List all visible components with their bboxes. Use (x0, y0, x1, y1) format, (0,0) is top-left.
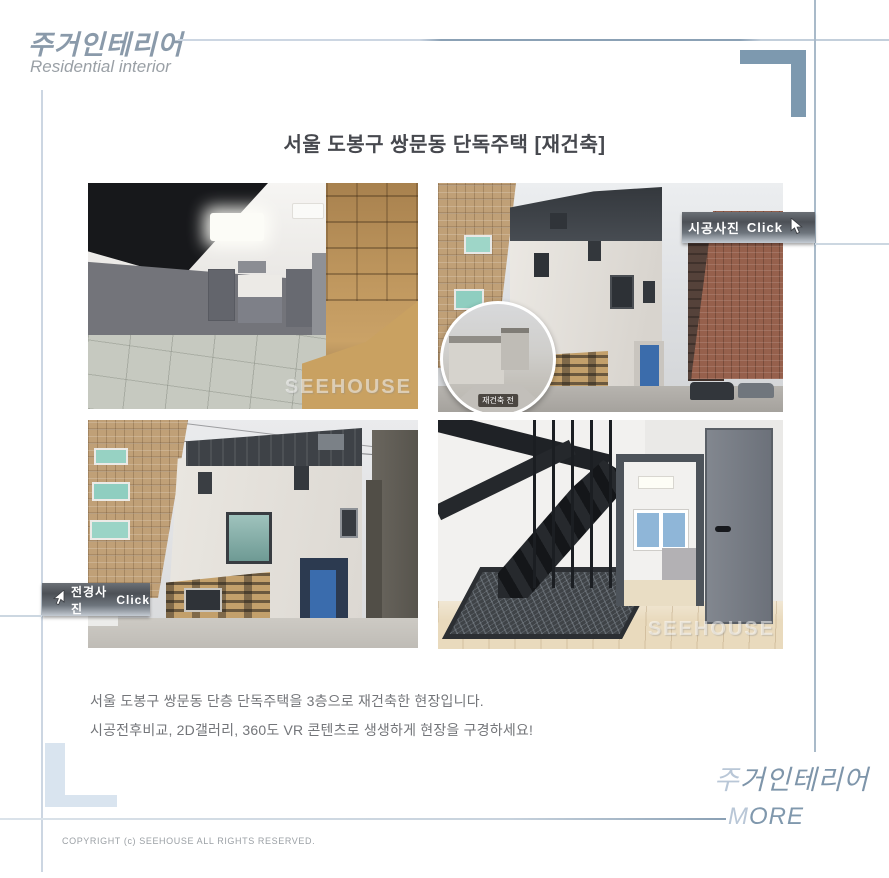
old-house (449, 336, 504, 384)
parked-car (690, 382, 734, 400)
button-extension-line-right (815, 243, 889, 245)
window (294, 466, 309, 490)
brand-logo-english: Residential interior (30, 57, 171, 77)
window (198, 472, 212, 494)
footer-brand-rest: 거인테리어 (740, 765, 869, 795)
watermark: SEEHOUSE (285, 376, 412, 399)
ceiling-vent (292, 203, 324, 219)
description-line-2: 시공전후비교, 2D갤러리, 360도 VR 콘텐츠로 생생하게 현장을 구경하… (90, 716, 533, 745)
left-vertical-line (41, 90, 43, 872)
interior-door (208, 269, 235, 321)
interior-opening (286, 269, 312, 327)
page-title: 서울 도봉구 쌍문동 단독주택 [재건축] (0, 128, 889, 157)
balcony-window (464, 235, 492, 254)
footer-divider-line (0, 818, 726, 820)
room-ceiling-light (638, 476, 674, 489)
kitchen-cabinet (238, 297, 282, 323)
window (550, 213, 567, 229)
window (610, 275, 634, 309)
button-extension-line-left (0, 615, 42, 617)
balcony-window (92, 482, 130, 501)
right-vertical-line (814, 0, 816, 752)
range-hood (238, 261, 266, 273)
header-divider-line (178, 39, 889, 41)
large-window (226, 512, 272, 564)
page: 주거인테리어 Residential interior 서울 도봉구 쌍문동 단… (0, 0, 889, 878)
more-rest: ORE (749, 803, 804, 830)
low-window (184, 588, 222, 612)
cursor-icon (51, 590, 65, 609)
photo-interior-livingroom[interactable]: SEEHOUSE (88, 183, 418, 409)
window (588, 241, 601, 261)
door-handle (715, 526, 731, 532)
inset-label: 재건축 전 (478, 394, 518, 407)
window (643, 281, 655, 303)
pavement (88, 618, 418, 648)
gray-door (705, 428, 773, 624)
neighbor-building-right-edge (366, 480, 382, 622)
room-window (634, 510, 688, 550)
old-building (501, 328, 529, 370)
construction-photos-button[interactable]: 시공사진 Click (682, 212, 815, 243)
more-first-char: M (728, 803, 749, 830)
panorama-photos-button[interactable]: 전경사진 Click (42, 583, 150, 616)
footer-brand-first-char: 주 (714, 765, 740, 795)
kitchen-backsplash (238, 275, 282, 297)
roof-window (318, 434, 344, 450)
before-photo-inset-circle: 재건축 전 (440, 301, 556, 412)
shelf-grid (326, 183, 418, 301)
copyright-text: COPYRIGHT (c) SEEHOUSE ALL RIGHTS RESERV… (62, 836, 315, 846)
description-text: 서울 도봉구 쌍문동 단층 단독주택을 3층으로 재건축한 현장입니다. 시공전… (90, 687, 533, 745)
description-line-1: 서울 도봉구 쌍문동 단층 단독주택을 3층으로 재건축한 현장입니다. (90, 687, 533, 716)
panorama-photos-label: 전경사진 (71, 583, 110, 617)
footer-brand: 주거인테리어 (714, 758, 869, 797)
corner-bracket-top-right (791, 50, 806, 117)
panorama-photos-click: Click (116, 593, 150, 607)
photo-interior-staircase[interactable]: SEEHOUSE (438, 420, 783, 649)
balcony-window (90, 520, 130, 540)
room-floor (624, 580, 696, 606)
parked-car (738, 383, 774, 398)
watermark: SEEHOUSE (648, 618, 775, 641)
construction-photos-label: 시공사진 (688, 218, 740, 237)
corner-bracket-bottom-left (45, 795, 117, 807)
ceiling-light (210, 213, 264, 241)
window (340, 508, 358, 538)
more-link[interactable]: MORE (728, 803, 804, 831)
balcony-window (94, 448, 128, 465)
room-through-doorway (624, 462, 696, 606)
stair-balusters (533, 420, 613, 588)
cursor-icon (790, 218, 805, 238)
construction-photos-click: Click (747, 220, 783, 235)
window (534, 253, 549, 277)
